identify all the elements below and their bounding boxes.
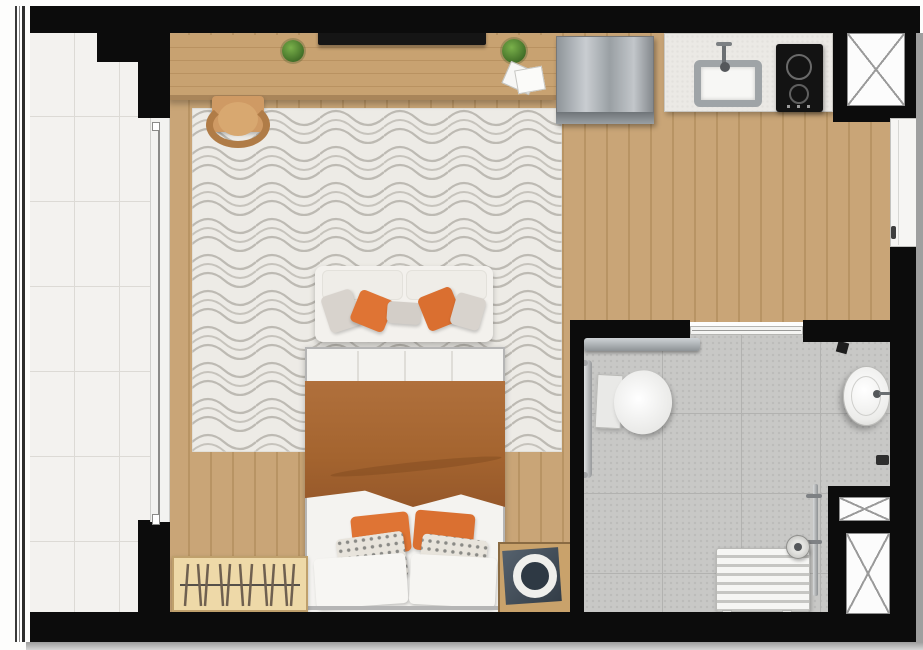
door-glass-line <box>158 126 160 516</box>
burner-icon <box>789 84 809 104</box>
shaft-box <box>846 533 890 614</box>
mattress-seam <box>357 351 359 381</box>
cooktop-knobs <box>787 105 811 108</box>
entry-door-handle <box>891 226 896 239</box>
faucet-icon <box>722 44 726 64</box>
burner-icon <box>786 54 812 80</box>
bed-pillow-white <box>313 553 408 609</box>
wall-step <box>138 520 170 620</box>
washer-drum-icon <box>513 554 557 598</box>
bathroom-door-panel <box>584 338 700 351</box>
faucet-spout <box>720 62 730 72</box>
shaft-box <box>839 497 890 521</box>
pipe-valve <box>806 494 822 498</box>
faucet-icon <box>879 392 890 395</box>
chair-seat <box>218 102 258 136</box>
floor-plan <box>0 0 923 650</box>
refrigerator <box>556 36 654 124</box>
grab-bar <box>584 360 592 478</box>
wall-shaft-left <box>833 33 847 122</box>
balcony-sliding-door <box>150 118 170 522</box>
wall-bathroom-top-right <box>803 320 890 342</box>
balcony-railing <box>15 6 27 642</box>
refrigerator-door-line <box>556 112 654 124</box>
wall-bathroom-left <box>570 320 584 618</box>
headboard-line <box>305 606 505 610</box>
wall-hook-icon <box>876 455 889 465</box>
mattress-seam <box>451 351 453 381</box>
shadow-right <box>916 33 923 642</box>
faucet-icon <box>716 42 732 46</box>
door-handle <box>152 122 160 131</box>
wall-top <box>30 6 920 33</box>
sofa-pillow-gray <box>386 301 421 325</box>
plant-icon <box>502 39 526 63</box>
toilet-bowl <box>612 369 673 436</box>
entry-door-line <box>898 120 899 245</box>
wall-step <box>138 33 170 118</box>
hangers-icon <box>176 558 304 610</box>
bathroom-door-track-line <box>692 330 801 331</box>
shadow-bottom <box>26 642 923 650</box>
shower-head-center <box>794 543 802 551</box>
toilet <box>594 368 679 438</box>
bed-pillow-white <box>409 554 497 608</box>
door-handle <box>152 514 160 525</box>
mattress-seam <box>404 351 406 381</box>
wall-step <box>97 33 138 62</box>
shaft-box <box>847 33 905 106</box>
papers <box>514 66 546 94</box>
wall-bottom <box>30 612 920 642</box>
bed-blanket <box>305 381 505 507</box>
plant-icon <box>282 40 304 62</box>
